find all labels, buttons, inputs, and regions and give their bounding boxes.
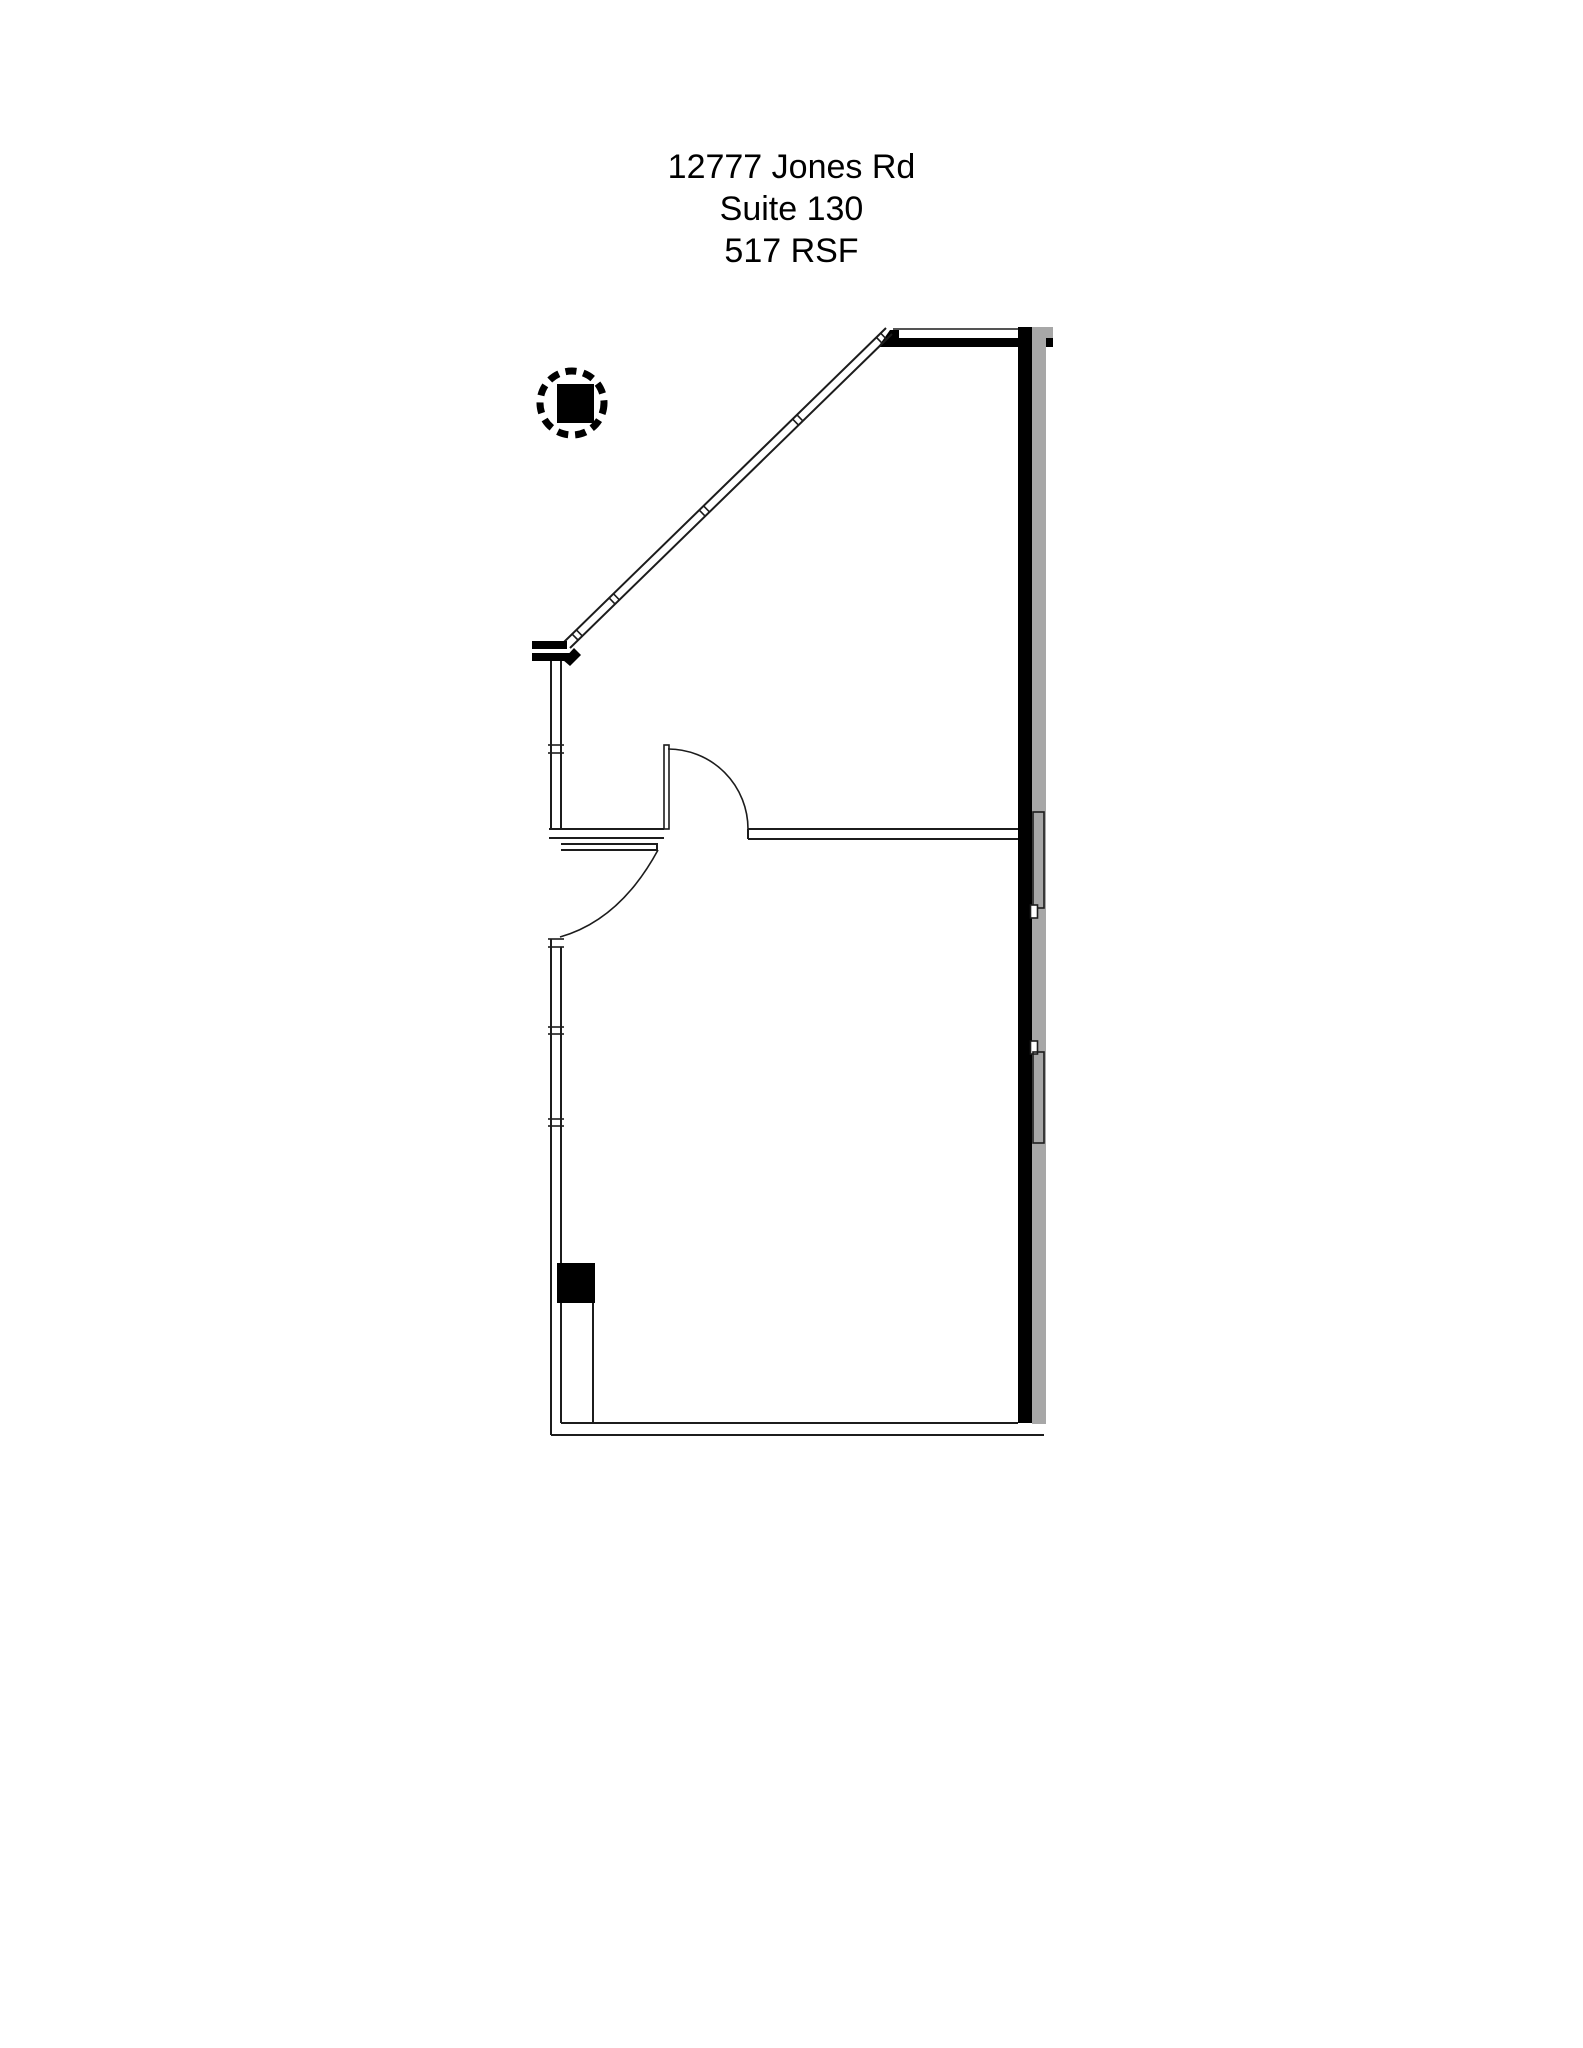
west-window-wall-lower	[548, 939, 564, 1435]
structural-column	[557, 1263, 595, 1423]
window-mullion-ticks	[572, 333, 887, 640]
interior-wall-lower	[561, 843, 658, 851]
door-swing-arc	[560, 850, 658, 937]
column-fill	[557, 1263, 595, 1303]
door-upper	[664, 745, 748, 829]
interior-wall-upper	[549, 829, 1018, 839]
door-swing-arc	[668, 749, 748, 829]
door-lower	[560, 850, 658, 937]
door-leaf	[664, 745, 669, 829]
diagonal-window-wall	[564, 328, 892, 648]
south-wall	[551, 1423, 1044, 1435]
column-marker-square	[557, 384, 594, 423]
column-marker	[540, 371, 604, 435]
floor-plan-drawing	[0, 0, 1583, 2048]
corridor-band	[1032, 327, 1053, 1424]
west-window-wall-upper	[548, 661, 564, 829]
floor-plan-page: 12777 Jones Rd Suite 130 517 RSF	[0, 0, 1583, 2048]
corridor-wall	[1018, 327, 1032, 1423]
